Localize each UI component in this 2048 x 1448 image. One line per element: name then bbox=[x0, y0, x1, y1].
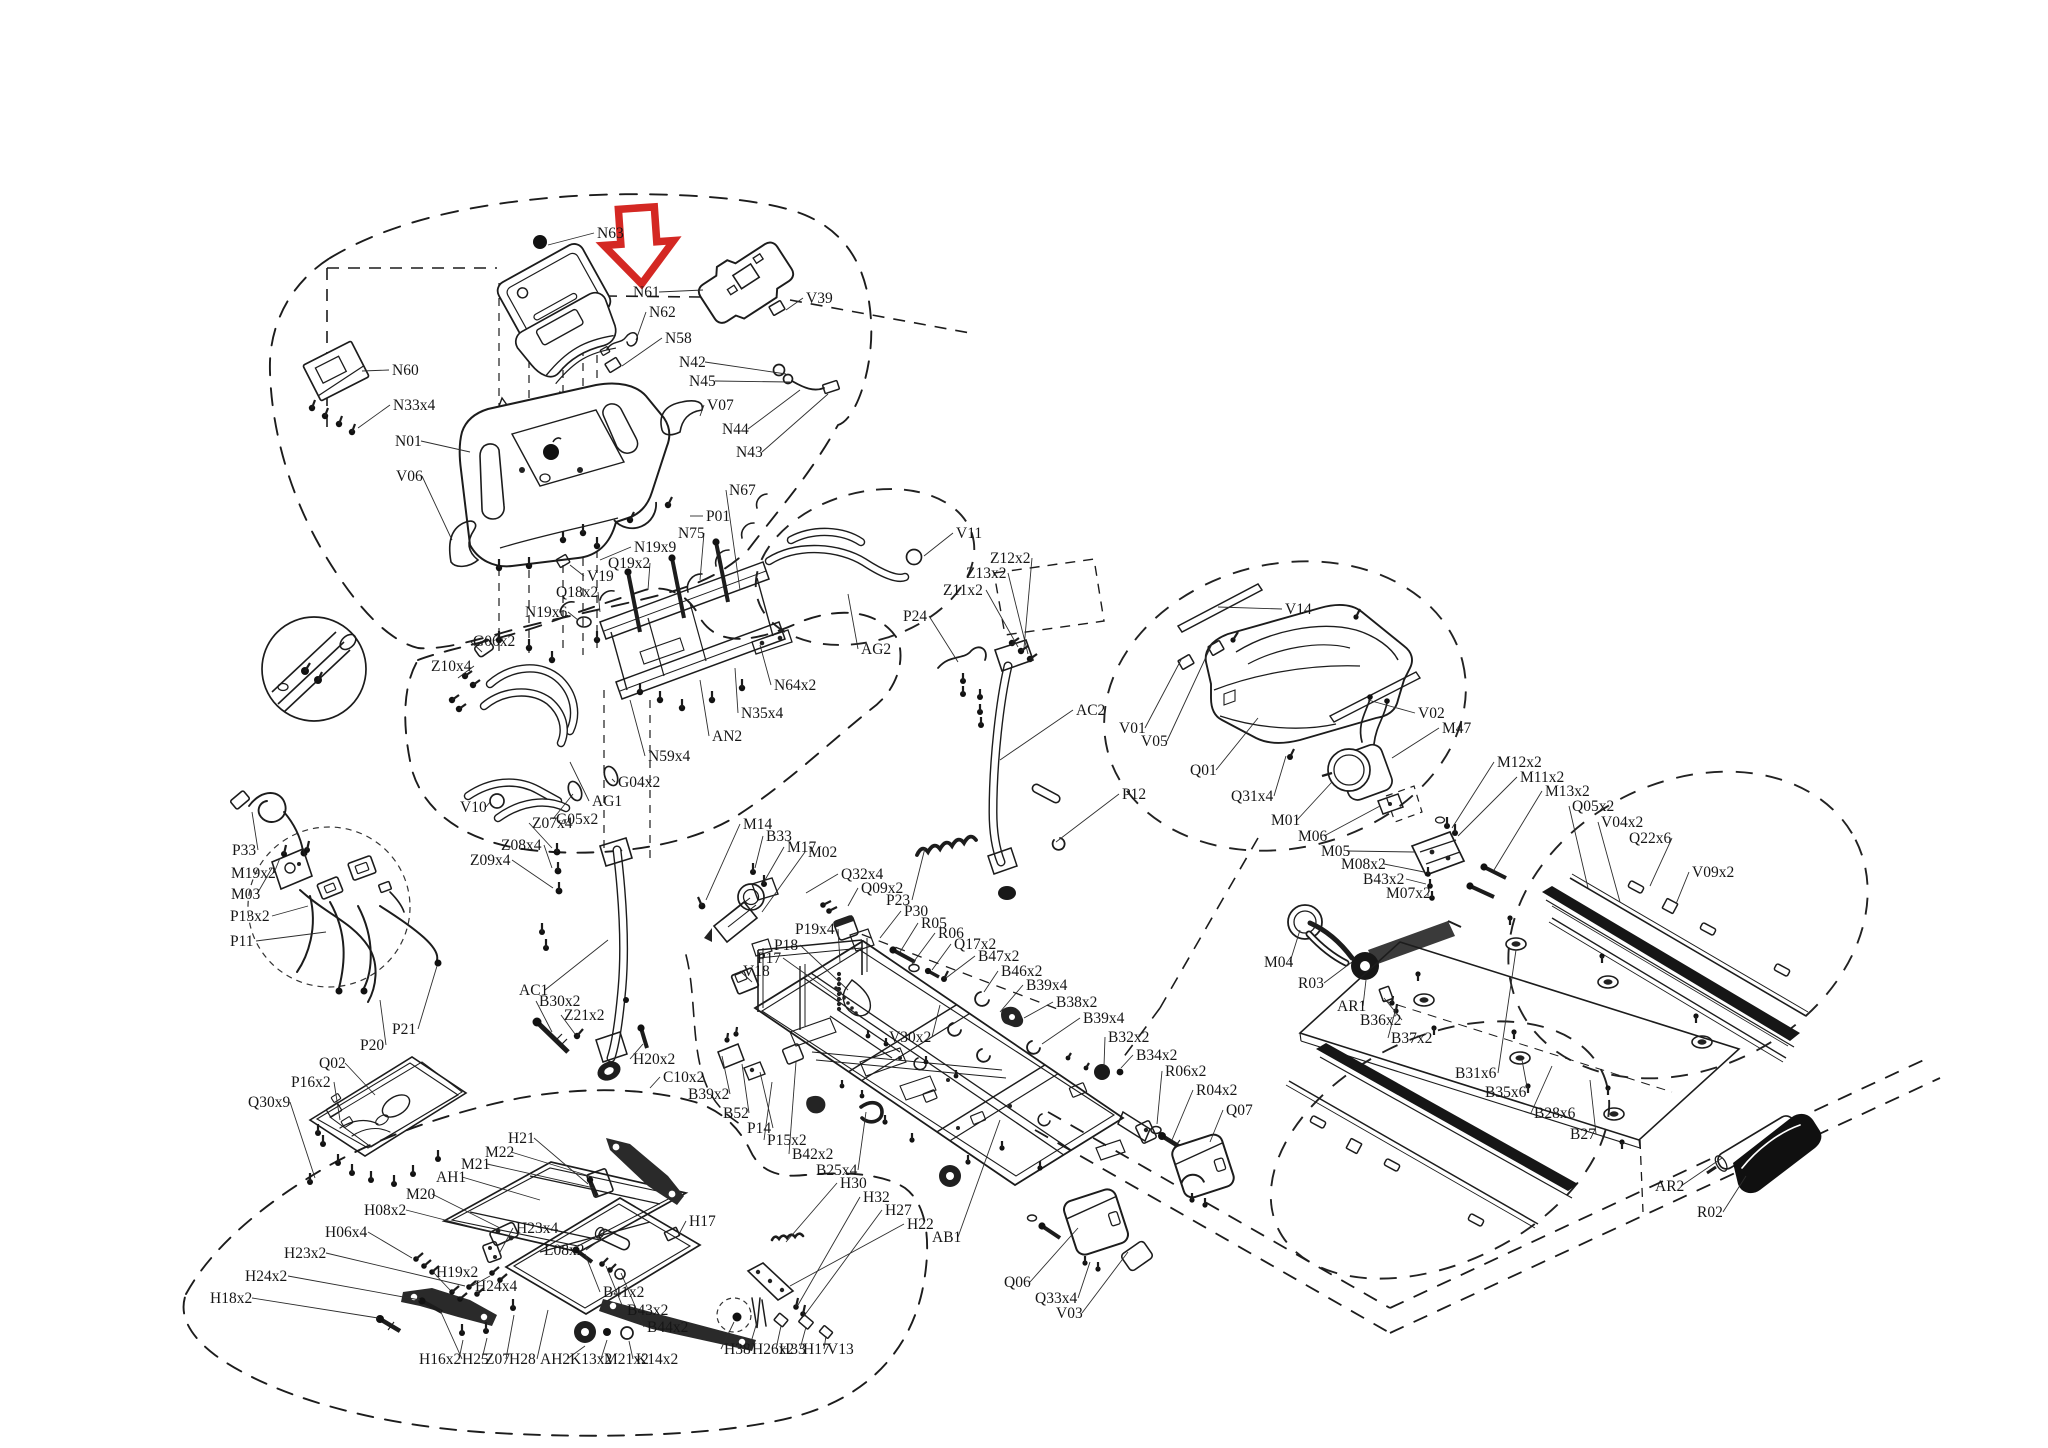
svg-text:P12: P12 bbox=[1122, 786, 1146, 803]
svg-text:V30x2: V30x2 bbox=[889, 1029, 931, 1046]
svg-text:N19x6: N19x6 bbox=[525, 604, 567, 621]
svg-text:Z13x2: Z13x2 bbox=[966, 565, 1006, 582]
svg-text:N67: N67 bbox=[729, 482, 756, 499]
svg-text:P24: P24 bbox=[903, 608, 927, 625]
svg-text:AC2: AC2 bbox=[1076, 702, 1105, 719]
svg-text:V02: V02 bbox=[1418, 705, 1445, 722]
svg-text:V04x2: V04x2 bbox=[1601, 814, 1643, 831]
svg-text:Q07: Q07 bbox=[1226, 1102, 1253, 1119]
svg-text:P13x2: P13x2 bbox=[230, 908, 270, 925]
svg-text:G06x2: G06x2 bbox=[473, 633, 515, 650]
svg-text:R04x2: R04x2 bbox=[1196, 1082, 1237, 1099]
svg-text:M03: M03 bbox=[231, 886, 261, 903]
svg-text:Q06: Q06 bbox=[1004, 1274, 1031, 1291]
svg-text:Q22x6: Q22x6 bbox=[1629, 830, 1671, 847]
svg-text:M47: M47 bbox=[1442, 720, 1472, 737]
svg-text:H23x2: H23x2 bbox=[284, 1245, 326, 1262]
svg-text:P01: P01 bbox=[706, 508, 730, 525]
svg-text:Q05x2: Q05x2 bbox=[1572, 798, 1614, 815]
svg-text:AH2: AH2 bbox=[540, 1351, 570, 1368]
svg-text:Z09x4: Z09x4 bbox=[470, 852, 511, 869]
svg-text:AG1: AG1 bbox=[592, 793, 622, 810]
svg-text:V39: V39 bbox=[806, 290, 833, 307]
svg-text:B28x6: B28x6 bbox=[1534, 1105, 1576, 1122]
svg-text:Q02: Q02 bbox=[319, 1055, 346, 1072]
svg-text:N60: N60 bbox=[392, 362, 419, 379]
svg-text:AN2: AN2 bbox=[712, 728, 742, 745]
svg-text:G04x2: G04x2 bbox=[618, 774, 660, 791]
svg-text:M20: M20 bbox=[406, 1186, 436, 1203]
svg-text:B37x2: B37x2 bbox=[1391, 1030, 1432, 1047]
svg-text:N62: N62 bbox=[649, 304, 676, 321]
svg-text:V06: V06 bbox=[396, 468, 423, 485]
svg-text:H17: H17 bbox=[803, 1341, 830, 1358]
svg-text:AB1: AB1 bbox=[932, 1229, 961, 1246]
svg-text:N19x9: N19x9 bbox=[634, 539, 676, 556]
svg-text:H08x2: H08x2 bbox=[364, 1202, 406, 1219]
svg-text:R03: R03 bbox=[1298, 975, 1324, 992]
svg-text:P33: P33 bbox=[232, 842, 256, 859]
svg-text:H23x4: H23x4 bbox=[516, 1220, 558, 1237]
svg-text:N59x4: N59x4 bbox=[648, 748, 690, 765]
svg-text:V05: V05 bbox=[1141, 733, 1168, 750]
svg-text:B38x2: B38x2 bbox=[1056, 994, 1097, 1011]
svg-text:B39x4: B39x4 bbox=[1026, 977, 1068, 994]
svg-text:V07: V07 bbox=[707, 397, 734, 414]
svg-text:M07x2: M07x2 bbox=[1386, 885, 1431, 902]
svg-text:B36x2: B36x2 bbox=[1360, 1012, 1401, 1029]
svg-text:H20x2: H20x2 bbox=[633, 1051, 675, 1068]
svg-text:H18x2: H18x2 bbox=[210, 1290, 252, 1307]
svg-text:Z07: Z07 bbox=[485, 1351, 510, 1368]
svg-text:Z10x4: Z10x4 bbox=[431, 658, 472, 675]
svg-text:AG2: AG2 bbox=[861, 641, 891, 658]
svg-text:Q33x4: Q33x4 bbox=[1035, 1290, 1077, 1307]
svg-text:L08x2: L08x2 bbox=[544, 1242, 584, 1259]
svg-text:H38: H38 bbox=[724, 1341, 751, 1358]
svg-text:M04: M04 bbox=[1264, 954, 1294, 971]
svg-text:AR2: AR2 bbox=[1655, 1178, 1684, 1195]
svg-text:H24x2: H24x2 bbox=[245, 1268, 287, 1285]
svg-text:H17: H17 bbox=[689, 1213, 716, 1230]
svg-text:H24x4: H24x4 bbox=[475, 1278, 517, 1295]
svg-text:H22: H22 bbox=[907, 1216, 934, 1233]
svg-text:H28: H28 bbox=[509, 1351, 536, 1368]
svg-text:N43: N43 bbox=[736, 444, 763, 461]
svg-text:B52: B52 bbox=[723, 1105, 749, 1122]
svg-text:V13: V13 bbox=[827, 1341, 854, 1358]
svg-text:V14: V14 bbox=[1285, 601, 1312, 618]
svg-text:H16x2: H16x2 bbox=[419, 1351, 461, 1368]
svg-text:Z21x2: Z21x2 bbox=[564, 1007, 604, 1024]
svg-text:N64x2: N64x2 bbox=[774, 677, 816, 694]
svg-text:B34x2: B34x2 bbox=[1136, 1047, 1177, 1064]
svg-text:P19x4: P19x4 bbox=[795, 921, 835, 938]
svg-text:C10x2: C10x2 bbox=[663, 1069, 704, 1086]
svg-text:V19: V19 bbox=[587, 568, 614, 585]
svg-text:N45: N45 bbox=[689, 373, 716, 390]
svg-text:B32x2: B32x2 bbox=[1108, 1029, 1149, 1046]
svg-text:V11: V11 bbox=[956, 525, 982, 542]
svg-text:V03: V03 bbox=[1056, 1305, 1083, 1322]
svg-text:P16x2: P16x2 bbox=[291, 1074, 331, 1091]
svg-text:N63: N63 bbox=[597, 225, 624, 242]
svg-text:Q31x4: Q31x4 bbox=[1231, 788, 1273, 805]
svg-text:AH1: AH1 bbox=[436, 1169, 466, 1186]
svg-text:K14x2: K14x2 bbox=[636, 1351, 678, 1368]
svg-text:B44x2: B44x2 bbox=[647, 1319, 688, 1336]
svg-text:Z07x4: Z07x4 bbox=[532, 815, 573, 832]
svg-text:N58: N58 bbox=[665, 330, 692, 347]
svg-text:Q19x2: Q19x2 bbox=[608, 555, 650, 572]
svg-text:P21: P21 bbox=[392, 1021, 416, 1038]
svg-text:B42x2: B42x2 bbox=[792, 1146, 833, 1163]
svg-text:P11: P11 bbox=[230, 933, 254, 950]
svg-text:Q30x9: Q30x9 bbox=[248, 1094, 290, 1111]
svg-text:Q18x2: Q18x2 bbox=[556, 584, 598, 601]
svg-text:Z11x2: Z11x2 bbox=[943, 582, 983, 599]
svg-text:B43x2: B43x2 bbox=[627, 1302, 668, 1319]
svg-text:B41x2: B41x2 bbox=[603, 1284, 644, 1301]
svg-text:N33x4: N33x4 bbox=[393, 397, 435, 414]
svg-text:B39x4: B39x4 bbox=[1083, 1010, 1125, 1027]
svg-text:N44: N44 bbox=[722, 421, 749, 438]
svg-text:P20: P20 bbox=[360, 1037, 384, 1054]
svg-text:N35x4: N35x4 bbox=[741, 705, 783, 722]
svg-text:V09x2: V09x2 bbox=[1692, 864, 1734, 881]
svg-text:B39x2: B39x2 bbox=[688, 1086, 729, 1103]
svg-text:M01: M01 bbox=[1271, 812, 1300, 829]
svg-text:V10: V10 bbox=[460, 799, 487, 816]
svg-text:Q01: Q01 bbox=[1190, 762, 1217, 779]
svg-text:V18: V18 bbox=[743, 963, 770, 980]
svg-text:B27: B27 bbox=[1570, 1126, 1596, 1143]
svg-text:M02: M02 bbox=[808, 844, 837, 861]
svg-text:N42: N42 bbox=[679, 354, 706, 371]
svg-text:B35x6: B35x6 bbox=[1485, 1084, 1527, 1101]
svg-text:N75: N75 bbox=[678, 525, 705, 542]
svg-text:R02: R02 bbox=[1697, 1204, 1723, 1221]
svg-text:R06x2: R06x2 bbox=[1165, 1063, 1206, 1080]
svg-text:N01: N01 bbox=[395, 433, 422, 450]
svg-text:H06x4: H06x4 bbox=[325, 1224, 367, 1241]
svg-text:B31x6: B31x6 bbox=[1455, 1065, 1497, 1082]
svg-text:N61: N61 bbox=[633, 284, 660, 301]
svg-text:H19x2: H19x2 bbox=[436, 1264, 478, 1281]
